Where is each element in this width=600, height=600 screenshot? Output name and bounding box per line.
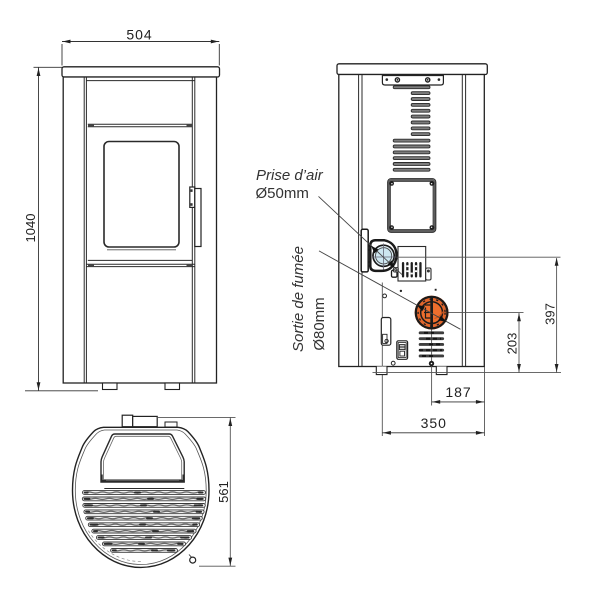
svg-text:Sortie de fumée: Sortie de fumée — [290, 246, 307, 352]
svg-text:Ø50mm: Ø50mm — [256, 185, 309, 202]
svg-text:1040: 1040 — [23, 214, 38, 243]
svg-text:Ø80mm: Ø80mm — [311, 297, 328, 350]
svg-text:504: 504 — [126, 27, 152, 43]
svg-text:Prise d’air: Prise d’air — [256, 167, 324, 184]
svg-text:187: 187 — [445, 384, 471, 400]
svg-text:561: 561 — [216, 481, 231, 503]
svg-text:203: 203 — [504, 333, 519, 355]
svg-text:397: 397 — [542, 303, 557, 325]
svg-text:350: 350 — [421, 415, 447, 431]
